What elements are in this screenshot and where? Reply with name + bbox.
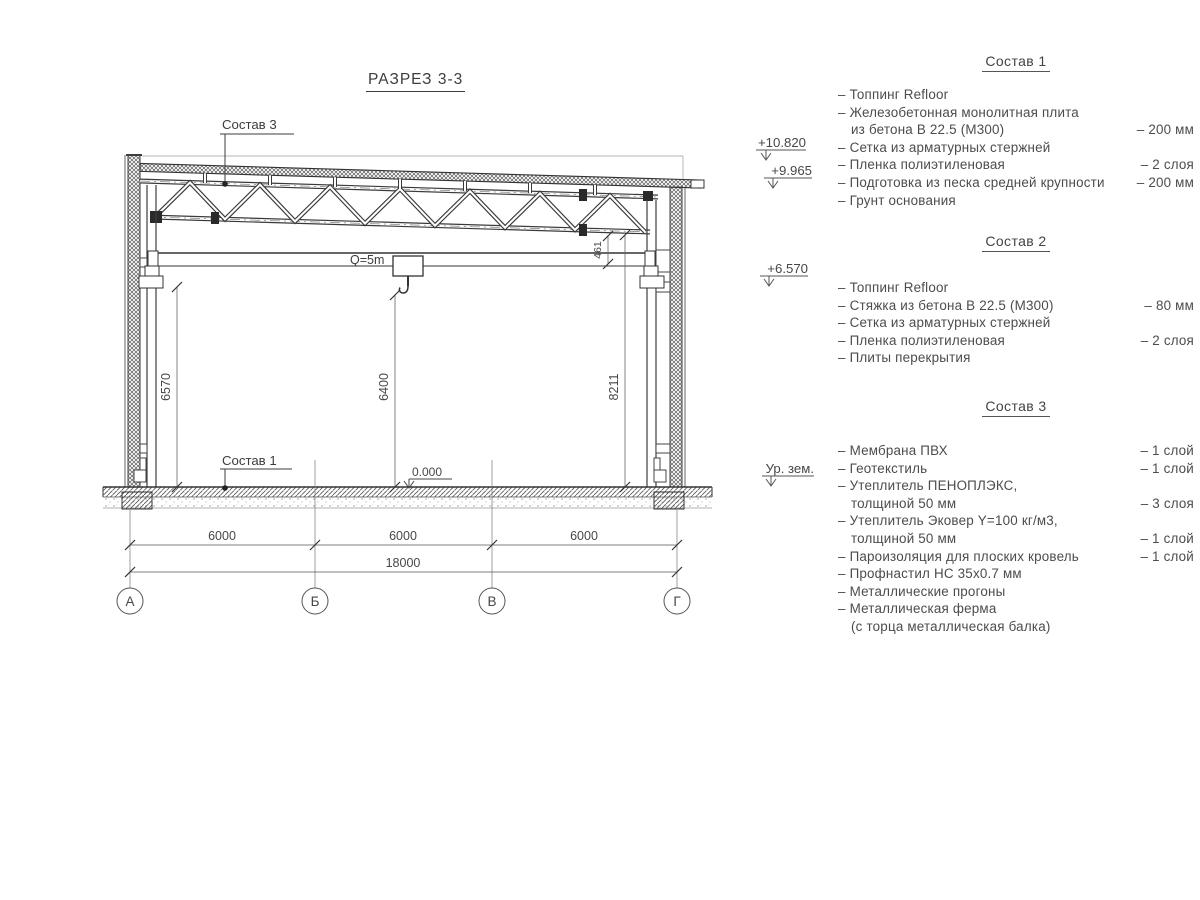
callout-sostav-3: Состав 3: [220, 117, 294, 187]
section-drawing: Q=5m Состав 3 Состав 1 0.000: [0, 0, 830, 660]
dim-span-3: 6000: [570, 529, 598, 543]
legend-item: – Топпинг Refloor: [838, 86, 1194, 104]
axis-label-v: В: [487, 594, 496, 609]
dim-left-height: 6570: [159, 373, 173, 401]
legend-item: – Сетка из арматурных стержней: [838, 314, 1194, 332]
callout-sostav-3-label: Состав 3: [222, 117, 277, 132]
legend-item: – Грунт основания: [838, 192, 1194, 210]
axis-label-a: А: [125, 594, 134, 609]
legend-item: толщиной 50 мм– 1 слой: [838, 530, 1194, 548]
elevation-crane: +6.570: [760, 261, 808, 286]
legend-section-1: Состав 1 – Топпинг Refloor – Железобетон…: [838, 53, 1194, 209]
legend-item: – Стяжка из бетона В 22.5 (М300)– 80 мм: [838, 297, 1194, 315]
elevation-marks: +10.820 +9.965 +6.570 Ур. зем.: [756, 135, 814, 486]
legend-item: – Пленка полиэтиленовая– 2 слоя: [838, 156, 1194, 174]
floor-slab: [103, 487, 712, 508]
legend-item: – Топпинг Refloor: [838, 279, 1194, 297]
legend-item: – Плиты перекрытия: [838, 349, 1194, 367]
wall-girts: [134, 250, 670, 482]
legend-section-3: Состав 3 – Мембрана ПВХ– 1 слой – Геотек…: [838, 398, 1194, 636]
svg-text:+10.820: +10.820: [758, 135, 806, 150]
legend-item: – Профнастил НС 35х0.7 мм: [838, 565, 1194, 583]
legend-item: – Утеплитель Эковер Y=100 кг/м3,: [838, 512, 1194, 530]
dim-span-1: 6000: [208, 529, 236, 543]
dim-span-2: 6000: [389, 529, 417, 543]
left-wall: [125, 155, 142, 487]
legend-item: толщиной 50 мм– 3 слоя: [838, 495, 1194, 513]
legend-item: – Мембрана ПВХ– 1 слой: [838, 442, 1194, 460]
legend-item: – Пароизоляция для плоских кровель– 1 сл…: [838, 548, 1194, 566]
callout-sostav-1-label: Состав 1: [222, 453, 277, 468]
elevation-roof: +9.965: [764, 163, 812, 188]
axis-bubbles: А Б В Г: [117, 588, 690, 614]
svg-text:+6.570: +6.570: [767, 261, 808, 276]
callout-sostav-1: Состав 1: [220, 453, 292, 491]
legend-item: – Железобетонная монолитная плита: [838, 104, 1194, 122]
crane-trolley: [393, 256, 423, 293]
axis-label-g: Г: [673, 594, 681, 609]
legend-item: – Подготовка из песка средней крупности–…: [838, 174, 1194, 192]
dim-truss-offset: 461: [592, 241, 604, 259]
legend-section-2: Состав 2 – Топпинг Refloor – Стяжка из б…: [838, 233, 1194, 367]
legend-heading-3: Состав 3: [982, 398, 1049, 417]
legend-item: – Пленка полиэтиленовая– 2 слоя: [838, 332, 1194, 350]
elevation-parapet: +10.820: [756, 135, 806, 160]
legend-heading-2: Состав 2: [982, 233, 1049, 252]
legend-item: – Утеплитель ПЕНОПЛЭКС,: [838, 477, 1194, 495]
dim-right-height: 8211: [607, 374, 621, 401]
svg-text:+9.965: +9.965: [771, 163, 812, 178]
legend-item: – Металлические прогоны: [838, 583, 1194, 601]
crane-hook: [399, 286, 408, 293]
zero-level-label: 0.000: [412, 465, 442, 479]
svg-text:Ур. зем.: Ур. зем.: [766, 461, 814, 476]
legend-heading-1: Состав 1: [982, 53, 1049, 72]
elevation-ground: Ур. зем.: [762, 461, 814, 486]
legend-item: – Геотекстиль– 1 слой: [838, 460, 1194, 478]
dim-hook-height: 6400: [377, 373, 391, 401]
crane-capacity-label: Q=5m: [350, 253, 384, 267]
legend-item: (с торца металлическая балка): [838, 618, 1194, 636]
zero-level-mark: 0.000: [404, 465, 452, 488]
legend-item: – Сетка из арматурных стержней: [838, 139, 1194, 157]
axis-label-b: Б: [311, 594, 320, 609]
legend-item: – Металлическая ферма: [838, 600, 1194, 618]
right-wall: [670, 187, 685, 487]
dim-total-span: 18000: [386, 556, 421, 570]
legend-item: из бетона В 22.5 (М300)– 200 мм: [838, 121, 1194, 139]
